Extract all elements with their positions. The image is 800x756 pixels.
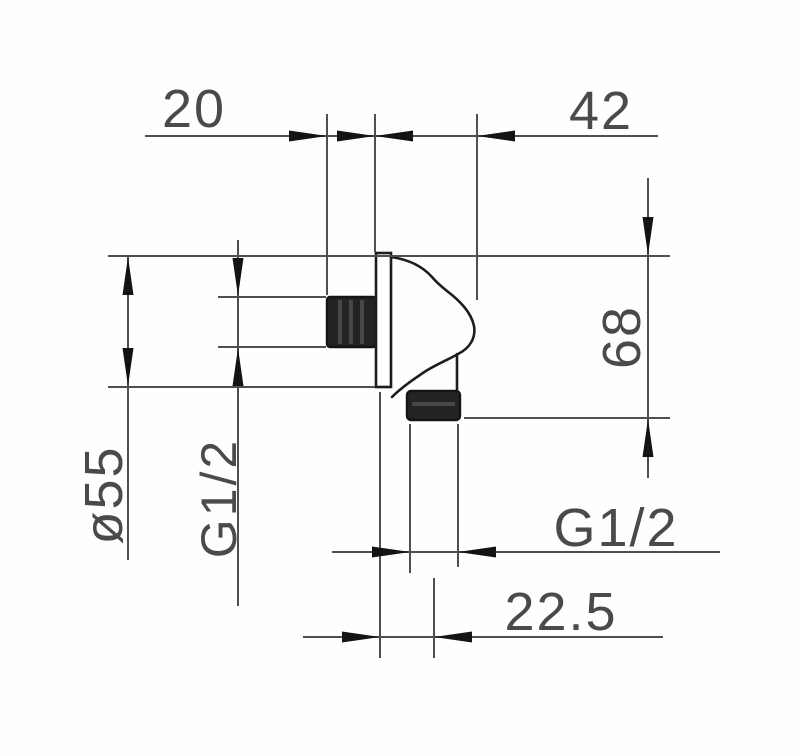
dim-label-outlet-offset: 22.5: [504, 582, 617, 642]
dim-label-flange-diameter: ø55: [74, 445, 134, 544]
dim-label-top-width: 20: [162, 79, 226, 139]
drawing-canvas: 20 42 68 ø55 G1/2 G1/2 22.5: [0, 0, 800, 756]
arrowhead: [123, 257, 134, 295]
dim-label-outlet-thread: G1/2: [553, 498, 678, 558]
body-bell-outline: [391, 257, 474, 397]
wall-flange-plate: [376, 253, 391, 387]
arrowhead: [643, 217, 654, 255]
arrowhead: [233, 258, 244, 296]
dim-label-body-depth: 42: [569, 81, 633, 141]
arrowhead: [123, 348, 134, 386]
arrowhead: [289, 131, 327, 142]
arrowhead: [458, 547, 496, 558]
dimension-drawing: 20 42 68 ø55 G1/2 G1/2 22.5: [0, 0, 800, 756]
dim-label-height: 68: [592, 305, 652, 369]
arrowhead: [375, 131, 413, 142]
arrowhead: [372, 547, 410, 558]
arrowhead: [643, 419, 654, 457]
arrowhead: [337, 131, 375, 142]
arrowhead: [477, 131, 515, 142]
arrowhead: [233, 348, 244, 386]
part-outline: [327, 253, 474, 420]
dim-label-inlet-thread: G1/2: [191, 438, 247, 558]
arrowhead: [434, 632, 472, 643]
arrowhead: [342, 632, 380, 643]
